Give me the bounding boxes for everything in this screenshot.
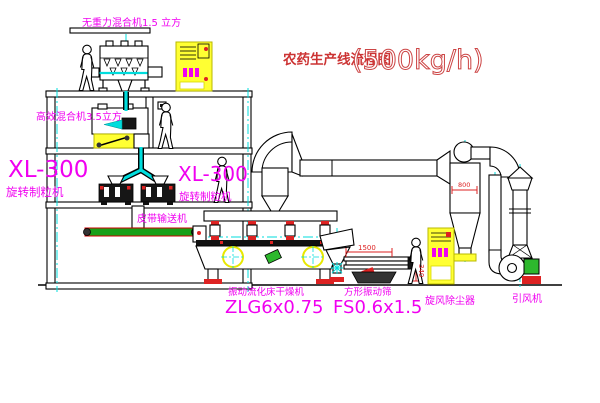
- fan-motor: [524, 259, 539, 274]
- dim-cyclone-width: 800: [458, 181, 470, 189]
- label-sieve-model: FS0.6x1.5: [333, 297, 422, 318]
- control-cabinet-lower: [428, 228, 454, 284]
- label-cyclone: 旋风除尘器: [425, 294, 475, 307]
- dim-sieve-length: 1500: [358, 244, 376, 252]
- process-flow-diagram: 无重力混合机1.5 立方 农药生产线流程图 (500kg/h) 高效混合机3.5…: [0, 0, 600, 403]
- label-fan: 引风机: [512, 292, 542, 305]
- square-sieve-drawing: [344, 248, 420, 283]
- dim-sieve-height: 340: [417, 264, 425, 277]
- label-dryer-model: ZLG6x0.75: [225, 297, 324, 318]
- label-granulator-left-model: XL-300: [8, 157, 88, 183]
- worker-figure-roof: [79, 45, 94, 90]
- label-granulator-mid-name: 旋转制粒机: [179, 190, 232, 203]
- label-weightless-mixer: 无重力混合机1.5 立方: [82, 16, 181, 29]
- fluid-bed-dryer-drawing: [193, 211, 340, 284]
- diagram-title-capacity: (500kg/h): [352, 45, 484, 76]
- rotary-valve-icon: [331, 262, 343, 274]
- rotary-granulator-left: [99, 176, 133, 205]
- control-cabinet-upper: [176, 42, 212, 91]
- exhaust-duct: [252, 132, 450, 211]
- label-granulator-mid-model: XL-300: [178, 162, 248, 186]
- label-granulator-left-name: 旋转制粒机: [6, 185, 64, 199]
- fan-base: [522, 276, 541, 284]
- worker-figure-floor2: [158, 103, 173, 148]
- rotary-granulator-right: [141, 176, 175, 205]
- diagram-drawing: 无重力混合机1.5 立方 农药生产线流程图 (500kg/h) 高效混合机3.5…: [0, 0, 600, 403]
- label-high-efficiency-mixer: 高效混合机3.5立方: [36, 110, 122, 123]
- label-belt-conveyor: 皮带输送机: [137, 212, 187, 225]
- belt-conveyor-drawing: [84, 228, 199, 236]
- chimney-and-fan-drawing: [499, 167, 541, 284]
- weightless-mixer-drawing: [91, 41, 162, 91]
- high-efficiency-mixer-drawing: [92, 104, 149, 148]
